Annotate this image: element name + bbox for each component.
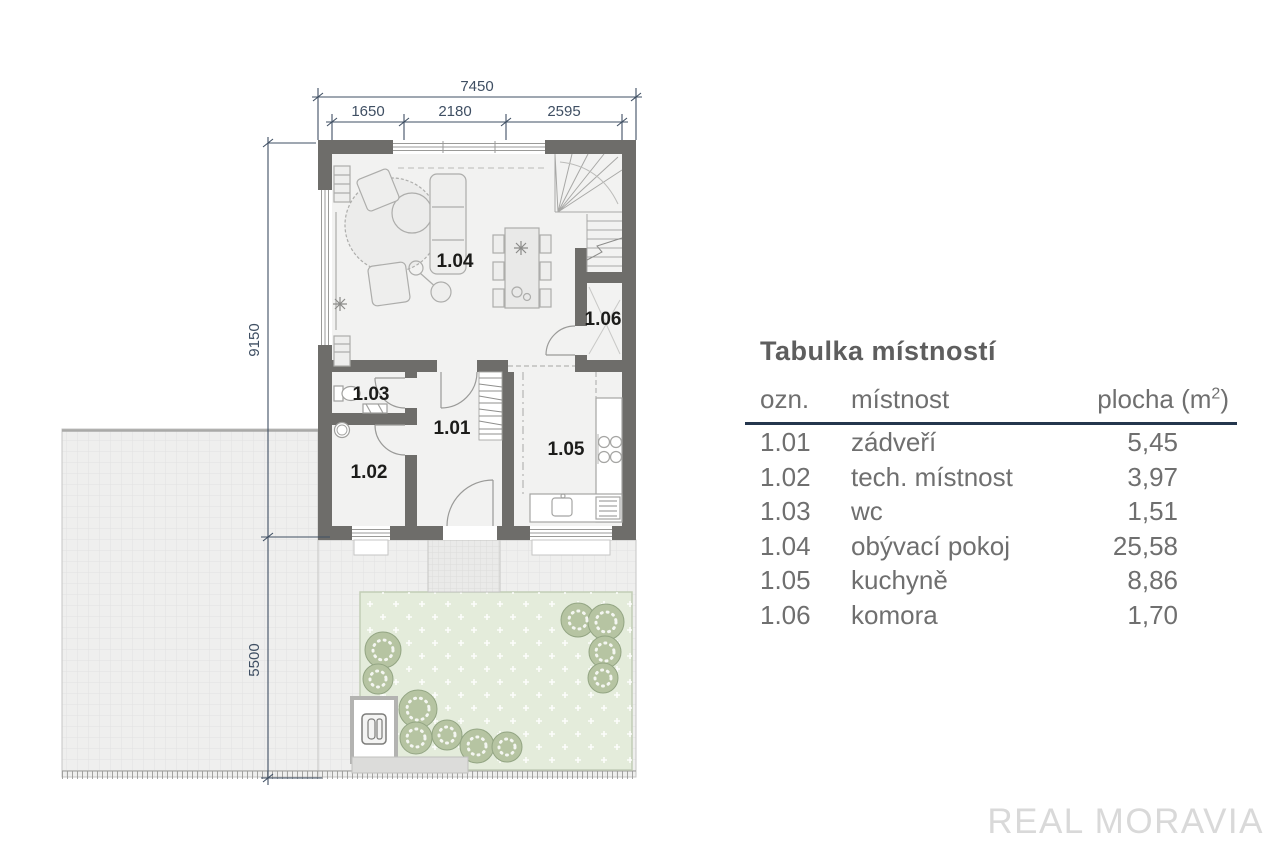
room-id: 1.03 [745,496,851,527]
room-name: kuchyně [851,565,1097,596]
room-table-header: ozn. místnost plocha (m2) [745,384,1237,415]
column-header-name: místnost [851,384,1097,415]
room-label-1-03: 1.03 [353,384,390,405]
room-id: 1.01 [745,427,851,458]
column-header-area: plocha (m2) [1097,384,1237,415]
dim-height-terrace: 5500 [246,643,263,676]
entrance-porch [428,540,500,592]
area-header-prefix: plocha (m [1097,384,1211,414]
dim-segment-3: 2595 [547,103,580,120]
room-id: 1.06 [745,600,851,631]
room-label-1-06: 1.06 [585,309,622,330]
dim-segment-2: 2180 [438,103,471,120]
table-row: 1.05 kuchyně 8,86 [745,564,1237,598]
table-row: 1.03 wc 1,51 [745,495,1237,529]
room-id: 1.05 [745,565,851,596]
room-table: Tabulka místností ozn. místnost plocha (… [745,336,1237,632]
table-row: 1.02 tech. místnost 3,97 [745,461,1237,495]
room-id: 1.02 [745,462,851,493]
dim-total-width: 7450 [460,78,493,95]
room-name: tech. místnost [851,462,1097,493]
table-row: 1.06 komora 1,70 [745,599,1237,633]
room-label-1-04: 1.04 [437,251,474,272]
room-label-1-01: 1.01 [434,418,471,439]
table-row: 1.01 zádveří 5,45 [745,426,1237,460]
room-table-title: Tabulka místností [745,336,1237,367]
dim-segment-1: 1650 [351,103,384,120]
house: 1.01 1.02 1.03 1.04 1.05 1.06 [318,140,636,555]
room-area: 5,45 [1097,427,1237,458]
watermark: REAL MORAVIA [987,802,1264,842]
room-label-1-05: 1.05 [548,439,585,460]
area-header-sup: 2 [1211,385,1220,402]
room-area: 1,70 [1097,600,1237,631]
room-name: komora [851,600,1097,631]
hall-stair-hatch [479,372,502,440]
room-id: 1.04 [745,531,851,562]
room-label-1-02: 1.02 [351,462,388,483]
room-area: 25,58 [1097,531,1237,562]
room-name: obývací pokoj [851,531,1097,562]
room-area: 3,97 [1097,462,1237,493]
table-header-rule [745,422,1237,425]
column-header-id: ozn. [745,384,851,415]
room-name: zádveří [851,427,1097,458]
table-row: 1.04 obývací pokoj 25,58 [745,530,1237,564]
room-name: wc [851,496,1097,527]
area-header-suffix: ) [1220,384,1229,414]
dim-height-main: 9150 [246,323,263,356]
room-area: 1,51 [1097,496,1237,527]
room-area: 8,86 [1097,565,1237,596]
